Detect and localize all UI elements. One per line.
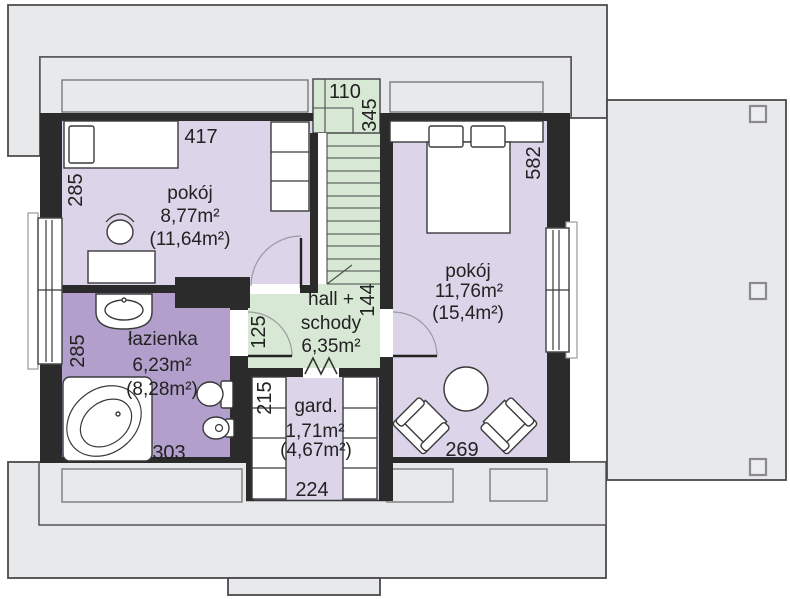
stairs-void-strip xyxy=(318,133,327,284)
dim-wardrobe-width: 224 xyxy=(295,479,328,501)
dim-stairs-height: 345 xyxy=(359,98,381,131)
room2-pillow-left xyxy=(429,126,463,147)
hall-name-line2: schody xyxy=(301,313,362,334)
wardrobe-area-gross: (4,67m²) xyxy=(280,440,352,461)
dim-room1-height: 285 xyxy=(65,173,87,206)
floor-plan-page: pokój 8,77m² (11,64m²) 417 285 łazienka … xyxy=(0,0,790,599)
room1-area-gross: (11,64m²) xyxy=(150,229,231,250)
toilet-bowl xyxy=(197,382,223,406)
hall-name-line1: hall + xyxy=(308,289,354,310)
dim-room2-height: 582 xyxy=(523,146,545,179)
room1-bed-pillow xyxy=(69,126,94,163)
washbasin-tap xyxy=(122,298,126,302)
dim-wardrobe-height: 215 xyxy=(254,381,276,414)
room2-area: 11,76m² xyxy=(435,281,503,302)
washbasin-bowl xyxy=(105,300,143,320)
floor-plan-drawing: pokój 8,77m² (11,64m²) 417 285 łazienka … xyxy=(0,0,790,599)
wall-wardrobe-right xyxy=(379,368,393,501)
dim-bathroom-width: 303 xyxy=(152,442,185,464)
bathroom-area-gross: (8,28m²) xyxy=(126,379,198,400)
wall-top-right xyxy=(380,113,570,121)
opening-room1-door xyxy=(250,284,300,294)
terrace-post-bottom xyxy=(750,459,766,475)
terrace xyxy=(607,100,786,480)
wall-left-lower xyxy=(40,363,62,461)
dim-room2-width: 269 xyxy=(445,439,478,461)
bathtub-drain xyxy=(116,412,120,416)
wardrobe-area: 1,71m² xyxy=(285,421,344,442)
wall-right-upper xyxy=(547,118,570,228)
room1-name: pokój xyxy=(167,183,212,204)
room2-table xyxy=(444,367,488,411)
terrace-post-middle xyxy=(750,283,766,299)
roof-window-top-left xyxy=(62,80,308,112)
window-left-frame xyxy=(38,218,62,364)
wall-left-upper xyxy=(40,121,62,219)
wall-stairs-left xyxy=(310,133,318,292)
opening-bathroom-door xyxy=(230,310,248,356)
room1-shelf-unit xyxy=(271,122,309,211)
bathroom-area: 6,23m² xyxy=(132,355,191,376)
dim-bathroom-height: 285 xyxy=(67,334,89,367)
roof-window-bottom-right xyxy=(490,469,547,501)
roof-window-top-right xyxy=(390,82,543,112)
room2-bed xyxy=(427,142,510,233)
room1-desk xyxy=(88,251,155,283)
bathroom-name: łazienka xyxy=(128,329,198,350)
wall-right-lower xyxy=(547,352,570,462)
wall-room1-bathroom xyxy=(62,285,175,293)
dim-hall-stairs-height: 144 xyxy=(357,283,379,316)
wall-hall-bottom-left xyxy=(248,368,305,377)
roof-window-bottom-left xyxy=(62,469,242,502)
hall-area: 6,35m² xyxy=(301,336,360,357)
room1-chair xyxy=(107,220,133,244)
dim-stairs-width: 110 xyxy=(329,81,361,103)
room2-pillow-right xyxy=(471,126,505,147)
window-left-sill xyxy=(28,213,38,369)
dim-room1-width: 417 xyxy=(184,126,217,148)
room1-area: 8,77m² xyxy=(160,206,219,227)
roof-window-bottom-mid xyxy=(387,469,453,502)
roof-bottom-bump xyxy=(228,578,380,595)
dim-hall-height: 125 xyxy=(248,315,270,348)
opening-room2-door xyxy=(380,309,393,357)
room2-headboard xyxy=(390,121,543,142)
wardrobe-name: gard. xyxy=(294,396,337,417)
room2-name: pokój xyxy=(445,261,490,282)
wall-interior-chunk xyxy=(175,277,250,308)
wall-top-left xyxy=(40,113,313,121)
terrace-post-top xyxy=(750,106,766,122)
room2-area-gross: (15,4m²) xyxy=(432,303,504,324)
